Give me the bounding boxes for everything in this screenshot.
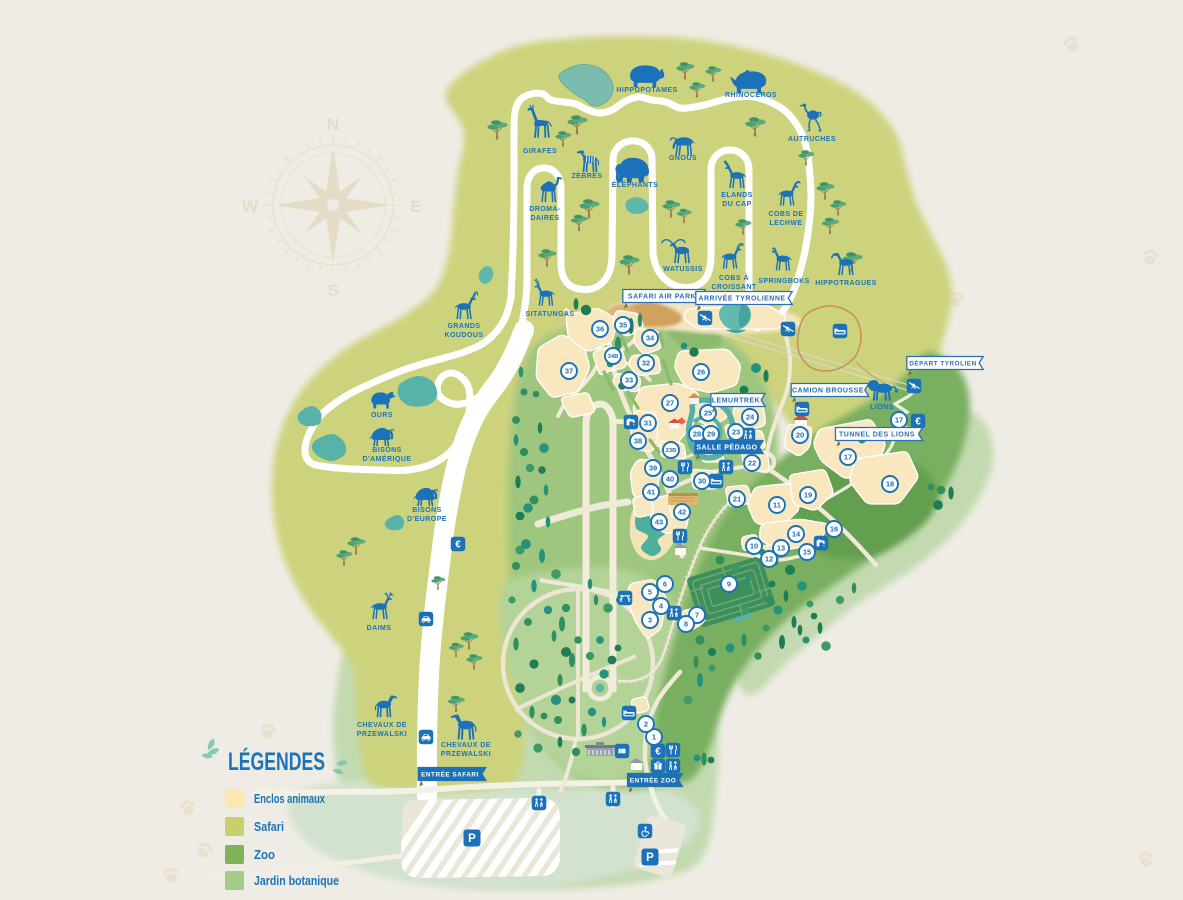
svg-text:34B: 34B (608, 354, 619, 360)
svg-text:ARRIVÉE TYROLIENNE: ARRIVÉE TYROLIENNE (698, 294, 785, 303)
svg-text:43: 43 (655, 518, 663, 527)
svg-text:€: € (455, 539, 461, 550)
svg-text:Zoo: Zoo (254, 848, 275, 862)
svg-text:1: 1 (652, 733, 656, 742)
svg-text:8: 8 (684, 620, 688, 629)
svg-text:19: 19 (804, 491, 812, 500)
svg-text:Safari: Safari (254, 820, 284, 834)
svg-text:38: 38 (634, 437, 642, 446)
svg-text:34: 34 (646, 334, 655, 343)
svg-text:2: 2 (644, 720, 648, 729)
svg-text:AUTRUCHES: AUTRUCHES (788, 136, 836, 143)
svg-text:28: 28 (693, 430, 701, 439)
svg-text:P: P (646, 852, 654, 864)
svg-text:ENTRÉE SAFARI: ENTRÉE SAFARI (421, 769, 479, 778)
svg-text:13: 13 (777, 544, 785, 553)
svg-text:41: 41 (647, 488, 655, 497)
svg-text:N: N (327, 115, 339, 134)
svg-text:36: 36 (596, 325, 604, 334)
svg-text:12: 12 (765, 555, 773, 564)
svg-text:€: € (915, 416, 921, 427)
svg-text:GIRAFES: GIRAFES (523, 148, 557, 155)
svg-text:TUNNEL DES LIONS: TUNNEL DES LIONS (839, 432, 915, 439)
svg-text:25: 25 (704, 409, 712, 418)
svg-text:ZÈBRES: ZÈBRES (571, 171, 602, 180)
svg-text:23: 23 (732, 428, 740, 437)
svg-text:20: 20 (796, 431, 804, 440)
svg-text:17: 17 (844, 453, 852, 462)
svg-text:16: 16 (830, 525, 838, 534)
svg-text:SAFARI AIR PARK: SAFARI AIR PARK (628, 294, 696, 301)
svg-text:CAMION BROUSSE: CAMION BROUSSE (792, 388, 864, 395)
svg-text:21: 21 (733, 495, 741, 504)
svg-text:27: 27 (666, 399, 674, 408)
svg-text:OURS: OURS (371, 412, 393, 419)
svg-text:HIPPOTRAGUES: HIPPOTRAGUES (815, 280, 876, 287)
svg-text:24: 24 (746, 413, 755, 422)
svg-text:18: 18 (886, 480, 894, 489)
svg-text:P: P (468, 833, 476, 845)
svg-text:RHINOCEROS: RHINOCEROS (725, 92, 777, 99)
svg-text:ENTRÉE ZOO: ENTRÉE ZOO (630, 775, 677, 784)
svg-text:22: 22 (748, 459, 756, 468)
svg-text:WATUSSIS: WATUSSIS (663, 266, 703, 273)
svg-text:LÉGENDES: LÉGENDES (228, 747, 325, 776)
svg-text:Jardin botanique: Jardin botanique (254, 874, 339, 888)
svg-text:S: S (327, 281, 338, 300)
svg-text:35: 35 (619, 321, 627, 330)
svg-text:10: 10 (750, 542, 758, 551)
svg-text:Enclos animaux: Enclos animaux (254, 792, 325, 806)
svg-text:11: 11 (773, 501, 781, 510)
svg-text:ÉLÉPHANTS: ÉLÉPHANTS (612, 180, 658, 189)
svg-text:33: 33 (625, 376, 633, 385)
svg-text:29: 29 (707, 430, 715, 439)
svg-text:37: 37 (565, 367, 573, 376)
svg-text:SITATUNGAS: SITATUNGAS (526, 311, 575, 318)
svg-text:32: 32 (642, 359, 650, 368)
svg-text:14: 14 (792, 530, 801, 539)
svg-text:HIPPOPOTAMES: HIPPOPOTAMES (616, 87, 677, 94)
svg-text:5: 5 (648, 588, 652, 597)
svg-text:E: E (410, 197, 421, 216)
svg-text:40: 40 (666, 475, 674, 484)
svg-text:SPRINGBOKS: SPRINGBOKS (758, 278, 810, 285)
svg-text:39: 39 (649, 464, 657, 473)
svg-text:€: € (655, 746, 661, 757)
svg-text:7: 7 (695, 611, 699, 620)
svg-text:DAIMS: DAIMS (367, 625, 392, 632)
svg-text:3: 3 (648, 616, 652, 625)
svg-text:9: 9 (727, 580, 731, 589)
svg-text:23B: 23B (666, 448, 677, 454)
svg-text:DÉPART TYROLIEN: DÉPART TYROLIEN (909, 358, 976, 367)
svg-text:31: 31 (644, 419, 652, 428)
svg-text:17: 17 (895, 416, 903, 425)
svg-text:GNOUS: GNOUS (669, 155, 697, 162)
svg-text:42: 42 (678, 508, 686, 517)
svg-text:W: W (242, 197, 259, 216)
svg-text:30: 30 (698, 477, 706, 486)
svg-text:SALLE PÉDAGO: SALLE PÉDAGO (696, 443, 757, 452)
svg-text:15: 15 (803, 548, 811, 557)
svg-text:LEMURTREK: LEMURTREK (712, 398, 760, 405)
svg-text:26: 26 (697, 368, 705, 377)
svg-text:LIONS: LIONS (870, 404, 894, 411)
svg-text:6: 6 (663, 580, 667, 589)
